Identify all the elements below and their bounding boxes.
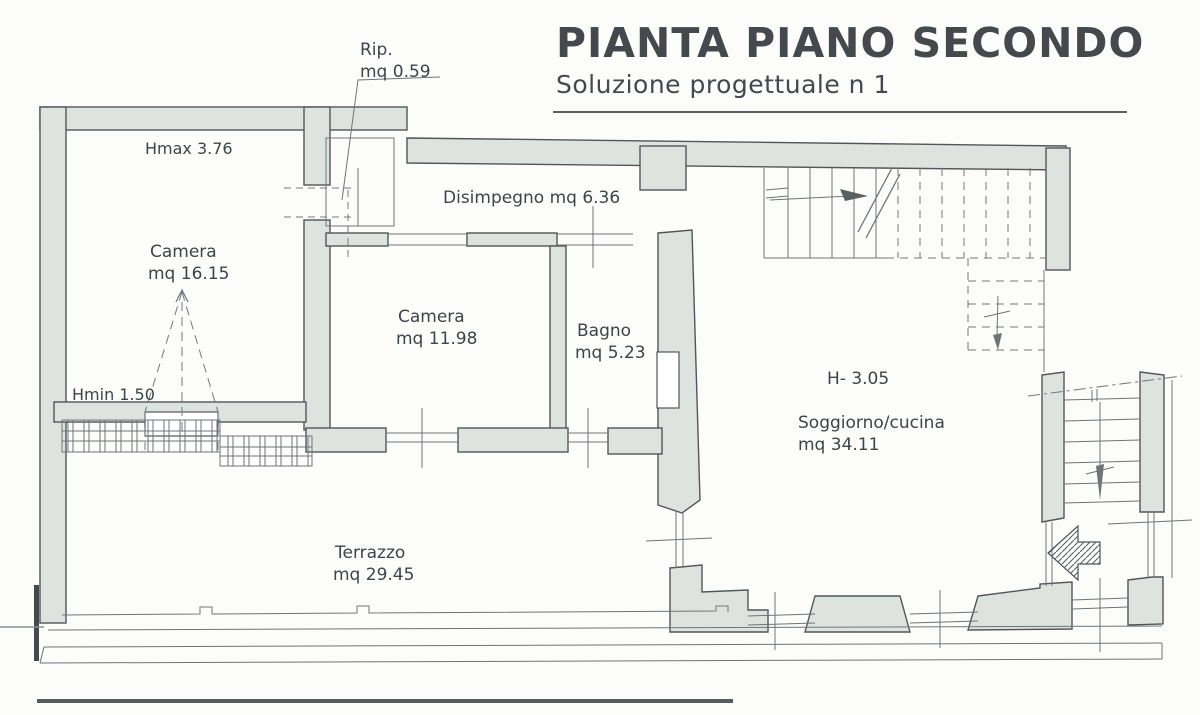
stair-down-dashed (968, 258, 1044, 352)
hmin-label: Hmin 1.50 (72, 385, 155, 404)
wall-openings (145, 352, 679, 436)
soggiorno-label-name: Soggiorno/cucina (798, 413, 945, 433)
wall-entry-stair-right (1140, 372, 1164, 512)
pier-soggiorno-4 (1128, 577, 1163, 625)
french-window-2 (910, 590, 978, 648)
walls (40, 107, 1164, 632)
pier-soggiorno-3 (968, 582, 1072, 630)
hmax-label: Hmax 3.76 (145, 139, 233, 158)
rip-label-name: Rip. (360, 40, 393, 60)
door-soggiorno-terrace (646, 512, 712, 568)
bagno-label-name: Bagno (577, 321, 631, 341)
wall-terrace-b (458, 428, 568, 452)
pier-soggiorno-1 (670, 565, 768, 632)
stair-entry-treads (1064, 389, 1140, 503)
soggiorno-label-area: mq 34.11 (798, 435, 879, 455)
scan-artifacts (0, 585, 733, 703)
wall-corridor-bottom-a (326, 233, 388, 246)
wall-entry-stair-left (1042, 372, 1064, 522)
wall-pier-stair-left (640, 146, 686, 190)
roof-slope-arrowhead (176, 290, 188, 302)
wall-top-right (407, 138, 1066, 170)
entry-direction-arrow-icon (1048, 526, 1100, 580)
wall-camera1-right-lower (304, 220, 330, 430)
terrazzo-label-area: mq 29.45 (333, 565, 414, 585)
rip-closet (326, 138, 394, 226)
wall-terrace-a (306, 428, 386, 452)
wall-terrace-c (608, 428, 662, 454)
wall-corridor-bottom-b (467, 233, 557, 246)
terrazzo-label-name: Terrazzo (334, 543, 405, 563)
camera2-label-area: mq 11.98 (396, 329, 477, 349)
wall-camera2-bagno (550, 246, 566, 430)
camera2-label-name: Camera (398, 307, 465, 327)
h-soggiorno-label: H- 3.05 (827, 369, 889, 389)
rip-label-area: mq 0.59 (360, 62, 431, 82)
wall-stair-right (1046, 148, 1070, 270)
stair-up-dashed (886, 168, 1046, 258)
camera1-label-area: mq 16.15 (148, 264, 229, 284)
stair-up-solid (764, 168, 900, 258)
floor-plan: Rip. mq 0.59 Hmax 3.76 Camera mq 16.15 D… (0, 0, 1200, 715)
wall-left (40, 107, 66, 623)
window-entry-stair (1072, 578, 1128, 652)
scan-edge-vertical (34, 585, 39, 661)
camera1-label-name: Camera (150, 242, 217, 262)
entry-stair-arrowhead (1096, 464, 1104, 500)
scan-line-bottom (37, 699, 733, 703)
disimpegno-label: Disimpegno mq 6.36 (443, 188, 620, 208)
window-camera2 (386, 408, 458, 468)
detail-lines (40, 138, 1192, 663)
window-bagno (568, 408, 608, 468)
bagno-wall-niche (657, 352, 679, 408)
bagno-label-area: mq 5.23 (575, 343, 646, 363)
terrace-railing-upper (62, 420, 312, 466)
